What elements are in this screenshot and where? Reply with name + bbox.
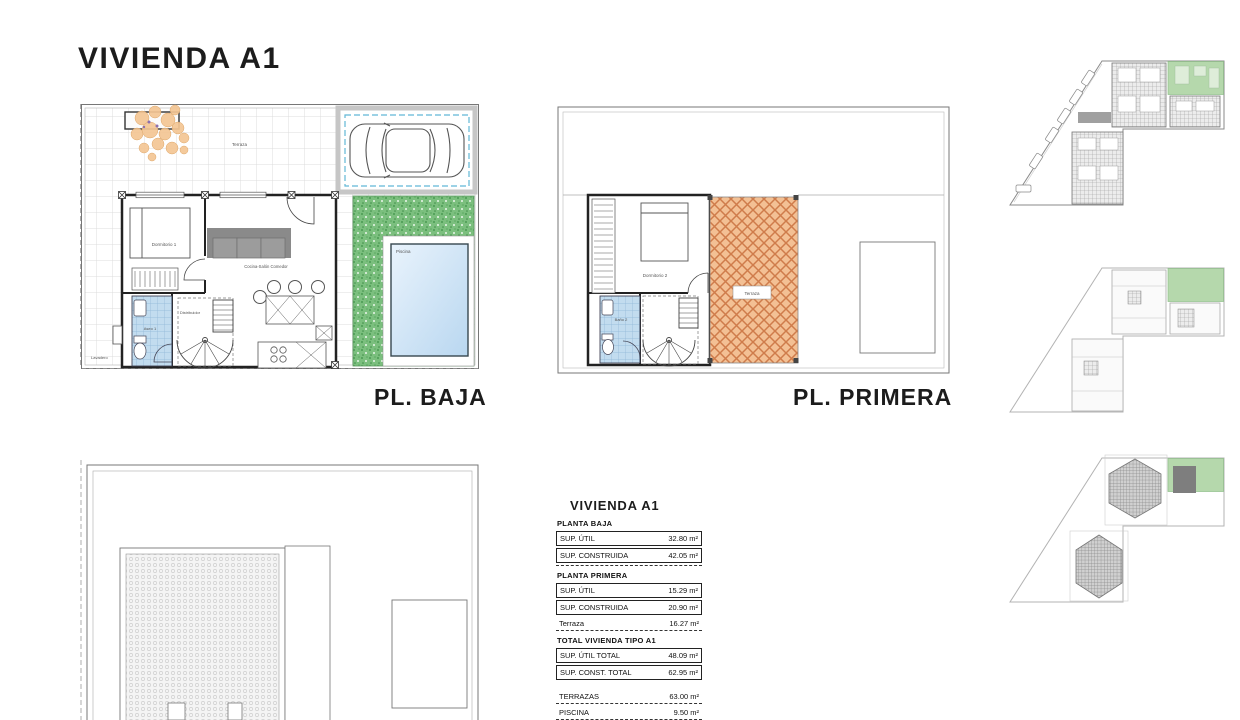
row-label: SUP. ÚTIL [560,586,595,595]
bath2-label: Baño 2 [615,317,628,322]
pool-label: Piscina [396,249,411,254]
site-overview-roof [1008,451,1226,611]
section-heading: PLANTA PRIMERA [557,571,702,580]
row-value: 9.50 m² [674,708,699,717]
ground-terrace-label: Terraza [232,142,248,147]
row-label: SUP. ÚTIL [560,534,595,543]
toilet [134,343,146,359]
table-row: PISCINA 9.50 m² [556,706,702,720]
bathroom-first [600,296,640,363]
section-heading: PLANTA BAJA [557,519,702,528]
laundry-label: Lavadero [91,355,108,360]
table-row: SUP. ÚTIL 15.29 m² [556,583,702,598]
bathroom-ground [132,296,172,366]
highlight-roof-block [1173,466,1196,493]
table-row: SUP. ÚTIL TOTAL 48.09 m² [556,648,702,663]
sink [602,300,613,315]
spacer [556,682,702,690]
pool [391,244,468,356]
site-overview-first [1008,261,1226,421]
table-row: SUP. CONST. TOTAL 62.95 m² [556,665,702,680]
terrace-label: Terraza [744,291,760,296]
table-row: SUP. ÚTIL 32.80 m² [556,531,702,546]
bedroom2-label: Dormitorio 2 [643,273,668,278]
kitchen-island [266,296,314,324]
bed-double [130,208,190,258]
car-icon [350,123,464,178]
plan-label-primera: PL. PRIMERA [793,384,952,411]
parking-space [338,108,475,192]
bed-double [641,203,688,261]
row-label: Terraza [559,619,584,628]
roof-surface [120,548,285,720]
roof-opening [228,703,242,720]
toilet-tank [134,336,146,343]
section-heading: TOTAL VIVIENDA TIPO A1 [557,636,702,645]
floor-plan-first: Dormitorio 2 Baño 2 Terraza [555,100,952,375]
area-summary-table: VIVIENDA A1 PLANTA BAJA SUP. ÚTIL 32.80 … [556,498,702,720]
floor-plan-ground: Piscina Terraza [80,100,482,370]
row-label: SUP. CONSTRUIDA [560,551,628,560]
plan-sheet: VIVIENDA A1 Piscina [0,0,1240,720]
table-row: TERRAZAS 63.00 m² [556,690,702,704]
toilet [603,340,614,355]
row-label: PISCINA [559,708,589,717]
row-label: SUP. ÚTIL TOTAL [560,651,620,660]
row-value: 48.09 m² [668,651,698,660]
row-label: SUP. CONST. TOTAL [560,668,632,677]
plan-label-baja: PL. BAJA [374,384,487,411]
table-title: VIVIENDA A1 [570,498,702,513]
hall-label: Distribuidor [180,310,201,315]
house-ground: Dormitorio 1 Cocina-Salón Comedor Distri… [113,192,339,369]
row-value: 20.90 m² [668,603,698,612]
bath1-label: Aseo 1 [144,326,157,331]
closet [132,268,178,290]
dashed-divider [556,565,702,566]
row-label: SUP. CONSTRUIDA [560,603,628,612]
pool-outline-below [860,242,935,353]
row-value: 16.27 m² [669,619,699,628]
row-value: 63.00 m² [669,692,699,701]
page-title: VIVIENDA A1 [78,42,281,76]
row-label: TERRAZAS [559,692,599,701]
house-first: Dormitorio 2 Baño 2 [588,195,710,366]
sink [134,300,146,316]
bedroom1-label: Dormitorio 1 [152,242,177,247]
wardrobe [592,199,615,293]
garden: Piscina [353,196,474,366]
sofa [207,228,291,258]
row-value: 15.29 m² [668,586,698,595]
site-overview-ground [1008,54,1226,214]
terrace-first: Terraza [708,195,799,363]
row-value: 42.05 m² [668,551,698,560]
table-row: SUP. CONSTRUIDA 20.90 m² [556,600,702,615]
row-value: 62.95 m² [668,668,698,677]
roof-opening [168,703,185,720]
laundry-sink [113,326,122,344]
pool-outline [392,600,467,708]
row-value: 32.80 m² [668,534,698,543]
highlight-unit [1168,269,1224,302]
table-row: SUP. CONSTRUIDA 42.05 m² [556,548,702,563]
table-row: Terraza 16.27 m² [556,617,702,631]
living-label: Cocina-Salón Comedor [244,264,288,269]
toilet-tank [602,334,613,340]
roof-plan [80,460,500,720]
side-passage [285,546,330,720]
